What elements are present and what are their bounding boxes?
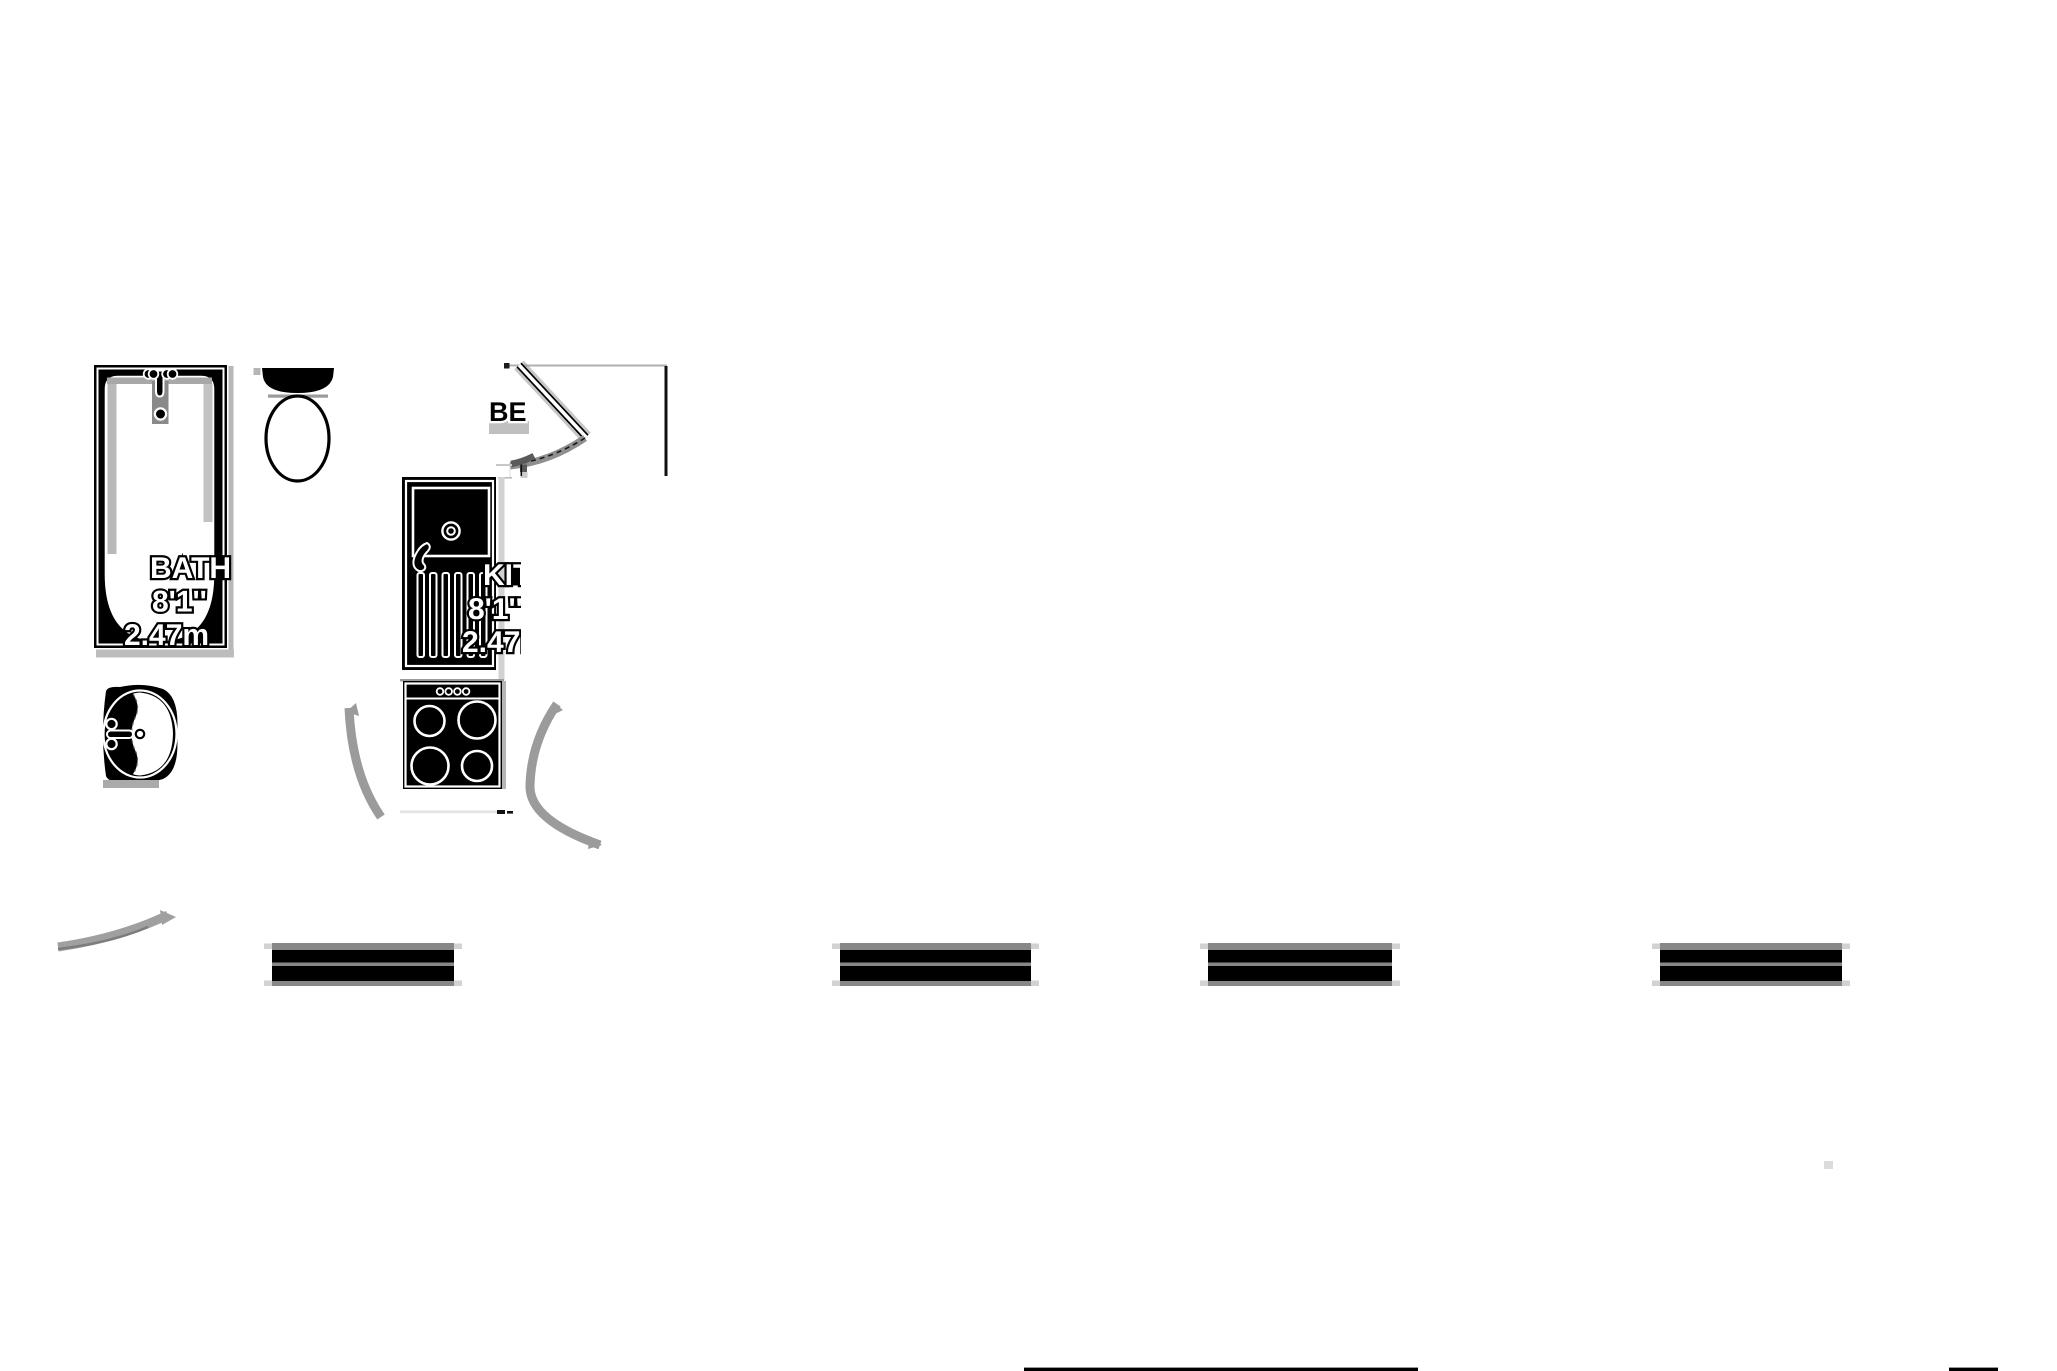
svg-text:2.47m: 2.47m [462,626,547,659]
svg-text:2.47m: 2.47m [124,619,209,652]
svg-text:BATH: BATH [150,552,231,585]
svg-text:8'1'': 8'1'' [468,593,523,626]
svg-text:BE: BE [489,397,527,427]
svg-text:8'1'': 8'1'' [152,586,207,619]
